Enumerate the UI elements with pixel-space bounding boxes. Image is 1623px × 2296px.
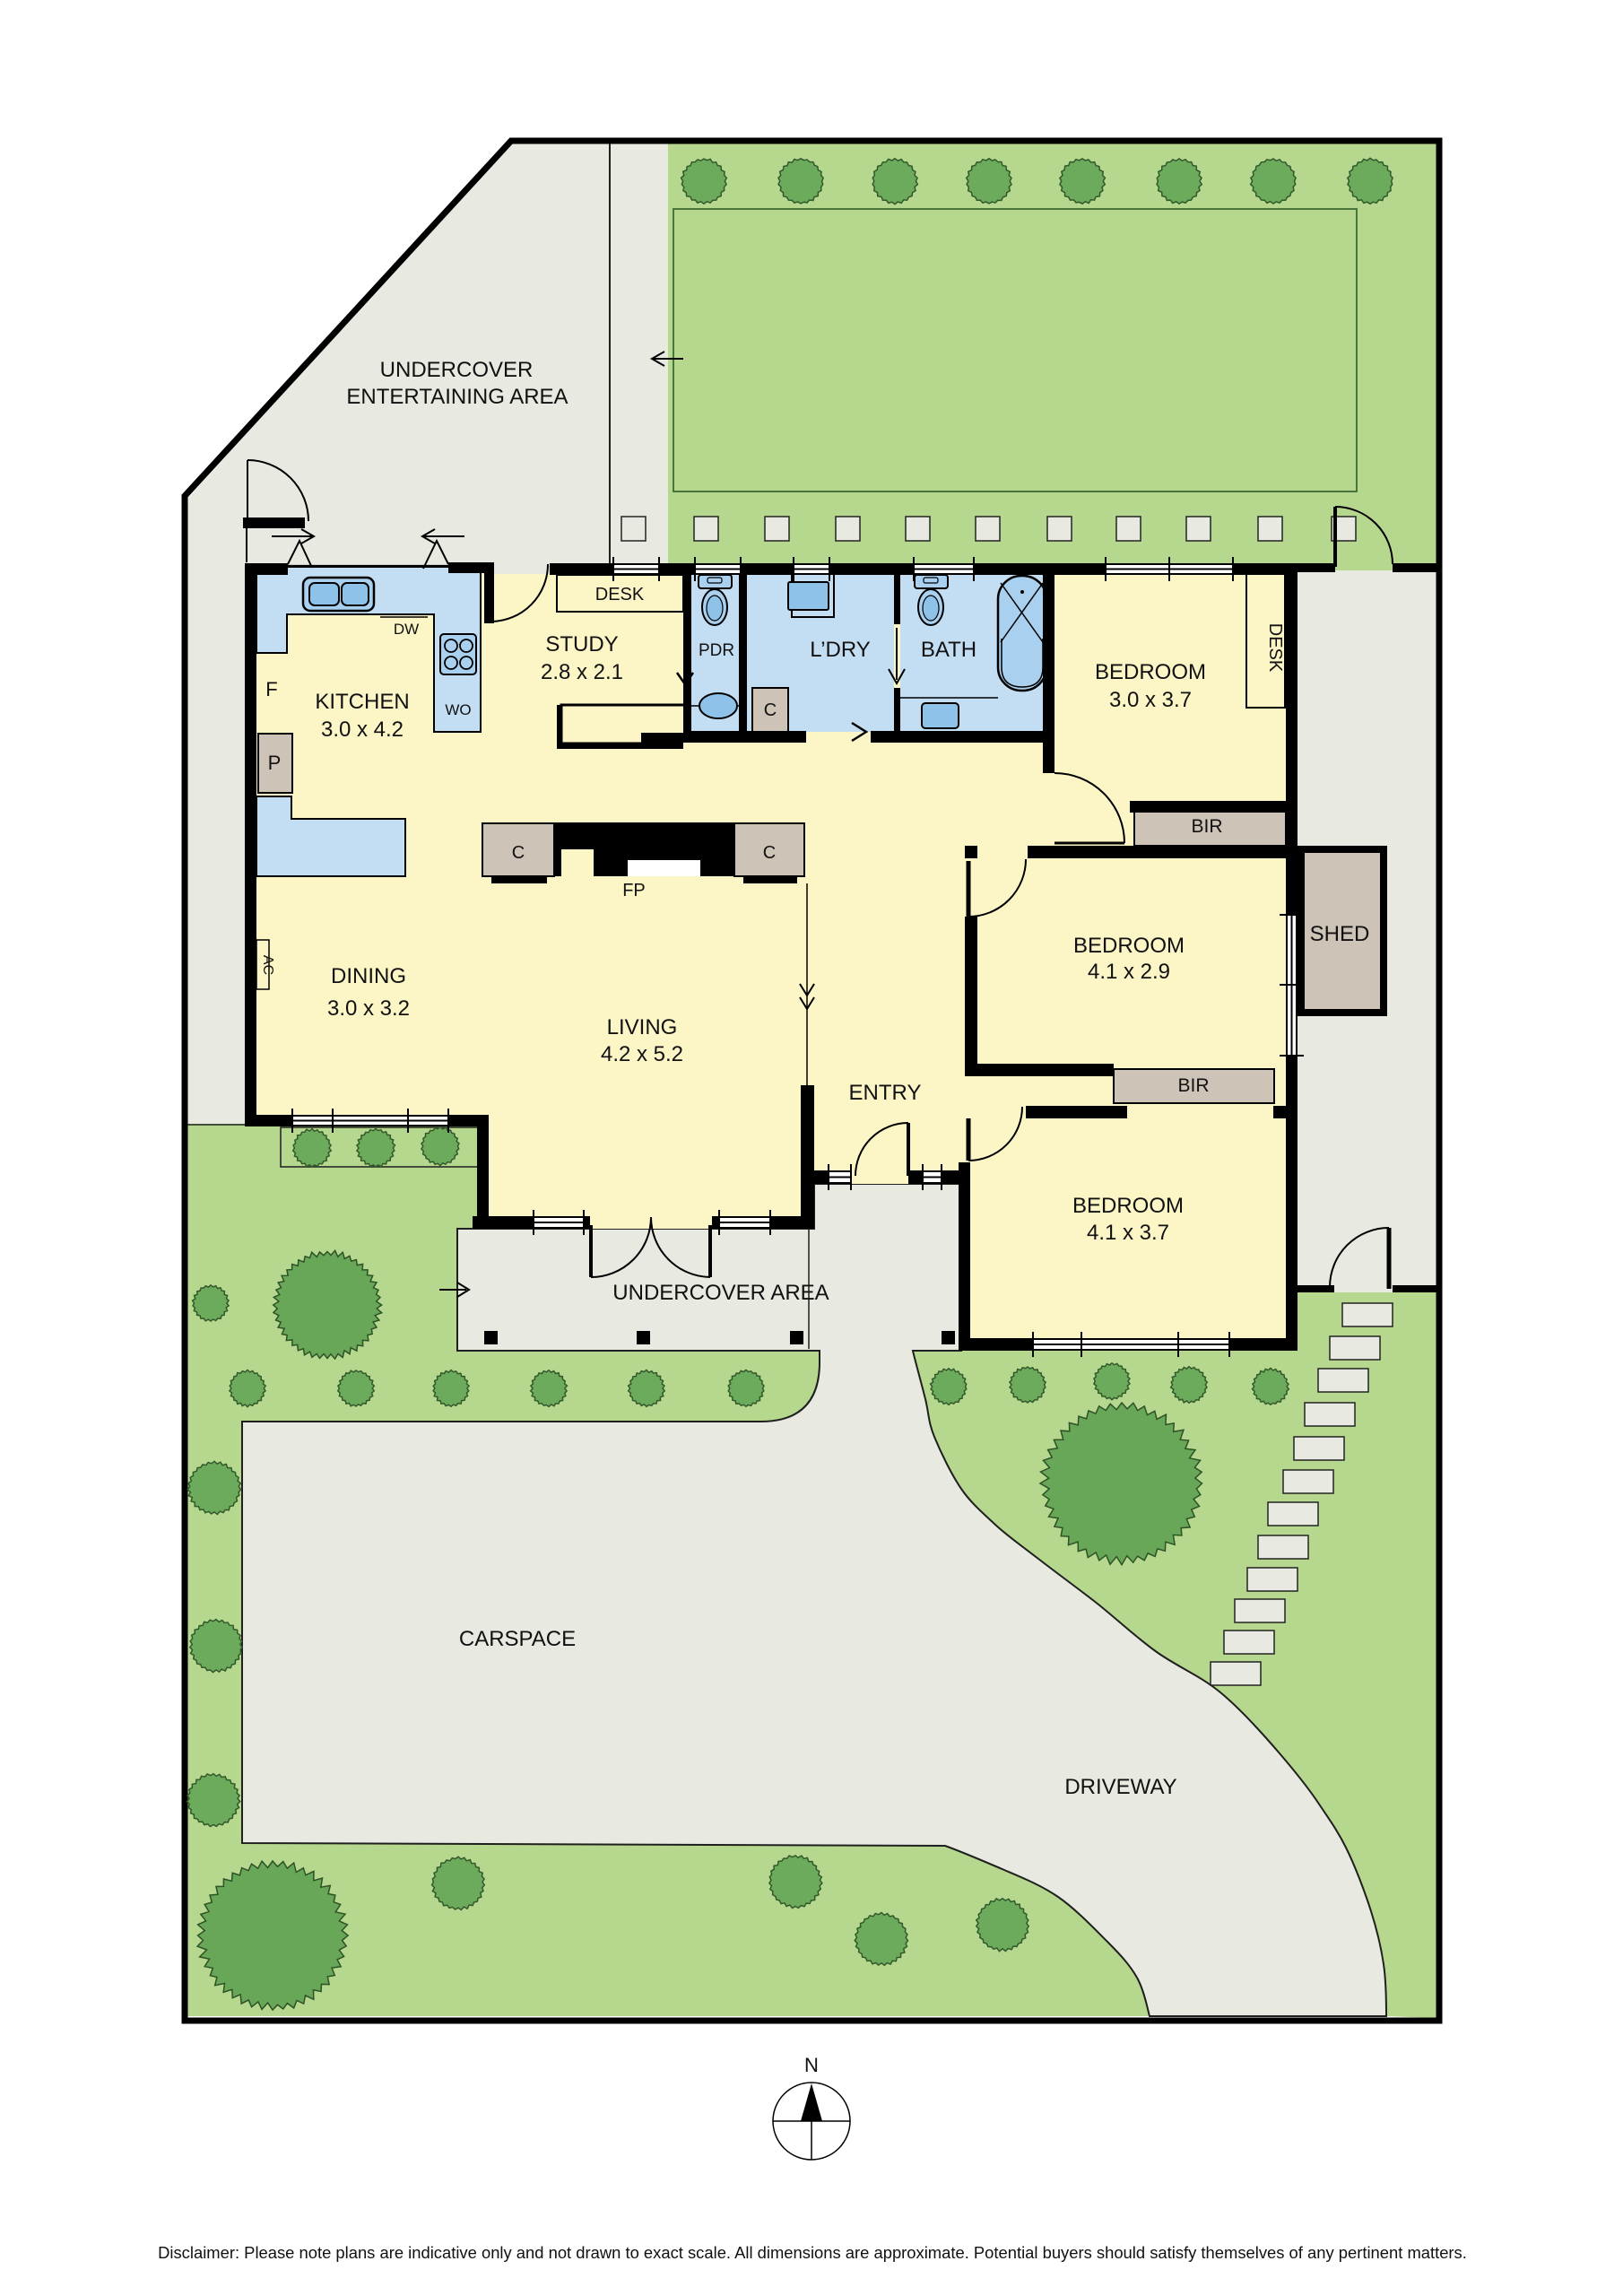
svg-text:AC: AC xyxy=(260,955,275,975)
svg-text:DRIVEWAY: DRIVEWAY xyxy=(1064,1775,1176,1799)
svg-text:UNDERCOVER: UNDERCOVER xyxy=(380,358,534,382)
svg-text:BATH: BATH xyxy=(921,638,976,662)
svg-text:BEDROOM: BEDROOM xyxy=(1073,934,1185,958)
svg-text:BEDROOM: BEDROOM xyxy=(1072,1194,1184,1218)
svg-text:C: C xyxy=(763,843,776,863)
svg-text:LIVING: LIVING xyxy=(607,1015,678,1039)
svg-text:C: C xyxy=(764,700,777,720)
svg-text:WO: WO xyxy=(445,701,471,718)
svg-text:4.1 x 3.7: 4.1 x 3.7 xyxy=(1087,1221,1169,1245)
svg-text:UNDERCOVER AREA: UNDERCOVER AREA xyxy=(612,1281,829,1305)
svg-text:DESK: DESK xyxy=(1265,623,1285,673)
svg-text:SHED: SHED xyxy=(1310,922,1370,946)
svg-text:4.2 x 5.2: 4.2 x 5.2 xyxy=(601,1042,683,1066)
svg-text:BEDROOM: BEDROOM xyxy=(1095,660,1206,684)
svg-text:KITCHEN: KITCHEN xyxy=(315,690,409,714)
svg-text:CARSPACE: CARSPACE xyxy=(459,1627,576,1651)
svg-text:3.0 x 3.7: 3.0 x 3.7 xyxy=(1109,688,1192,712)
svg-text:L’DRY: L’DRY xyxy=(810,638,871,662)
svg-text:3.0 x 4.2: 3.0 x 4.2 xyxy=(321,717,404,742)
svg-text:ENTRY: ENTRY xyxy=(849,1081,922,1105)
svg-text:3.0 x 3.2: 3.0 x 3.2 xyxy=(327,996,410,1021)
svg-text:Disclaimer: Please note plans: Disclaimer: Please note plans are indica… xyxy=(158,2243,1467,2262)
svg-text:F: F xyxy=(265,678,277,700)
svg-text:P: P xyxy=(268,752,282,774)
svg-text:PDR: PDR xyxy=(699,641,734,660)
svg-text:FP: FP xyxy=(622,881,646,900)
svg-text:4.1 x 2.9: 4.1 x 2.9 xyxy=(1088,960,1170,984)
svg-text:DW: DW xyxy=(394,621,419,638)
svg-text:BIR: BIR xyxy=(1177,1075,1209,1096)
svg-text:2.8 x 2.1: 2.8 x 2.1 xyxy=(541,660,623,684)
svg-text:STUDY: STUDY xyxy=(545,632,618,657)
svg-text:BIR: BIR xyxy=(1191,816,1222,837)
svg-text:DESK: DESK xyxy=(595,585,645,604)
svg-text:ENTERTAINING AREA: ENTERTAINING AREA xyxy=(346,385,568,409)
svg-text:N: N xyxy=(804,2054,819,2076)
svg-text:C: C xyxy=(512,843,525,863)
svg-text:DINING: DINING xyxy=(331,964,406,988)
